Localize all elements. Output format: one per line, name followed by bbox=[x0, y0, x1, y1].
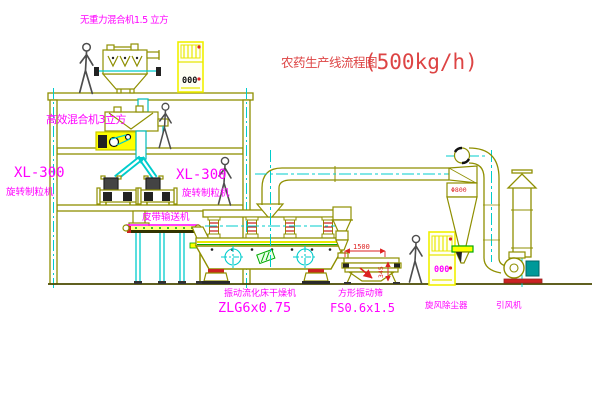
worker-figure-4 bbox=[410, 235, 423, 283]
label-conveyor: 皮带输送机 bbox=[142, 211, 190, 223]
indicator-dot bbox=[449, 237, 452, 240]
induced-draft-fan bbox=[504, 252, 542, 283]
label-granulator-mid: 旋转制粒机 bbox=[182, 187, 230, 199]
square-vibrating-sieve bbox=[338, 253, 401, 284]
label-granulator-left: 旋转制粒机 bbox=[6, 186, 54, 198]
cabinet2-display: 000 bbox=[434, 265, 449, 275]
indicator-dot bbox=[449, 266, 452, 269]
dim-sieve-height: 345 bbox=[377, 266, 385, 278]
granulator-left bbox=[97, 176, 139, 205]
exhaust-duct bbox=[262, 166, 449, 205]
control-cabinet-2: 000 bbox=[429, 232, 455, 285]
gravity-free-mixer bbox=[94, 44, 161, 93]
cyclone-dust-collector bbox=[447, 148, 477, 263]
process-flow-diagram: 000 bbox=[0, 0, 600, 403]
label-dryer-name: 振动流化床干燥机 bbox=[224, 287, 296, 299]
label-dryer-model: ZLG6x0.75 bbox=[218, 300, 291, 316]
belt-conveyor bbox=[123, 225, 201, 284]
cabinet1-display: 000 bbox=[182, 76, 197, 86]
label-xl300-mid: XL-300 bbox=[176, 167, 227, 183]
page-title-capacity: (500kg/h) bbox=[364, 50, 478, 74]
label-top-mixer: 无重力混合机1.5 立方 bbox=[80, 14, 168, 26]
label-fan: 引风机 bbox=[496, 300, 522, 311]
label-mixer2: 高效混合机3立方 bbox=[46, 112, 126, 126]
label-xl300-left: XL-300 bbox=[14, 165, 65, 181]
exhaust-stack bbox=[508, 170, 536, 257]
indicator-dot bbox=[197, 45, 200, 48]
cad-drawing-canvas: 000 bbox=[0, 0, 600, 403]
dryer-feet bbox=[202, 269, 330, 284]
label-sieve-model: FS0.6x1.5 bbox=[330, 301, 395, 315]
indicator-dot bbox=[197, 77, 200, 80]
dim-cyclone-diameter: Φ800 bbox=[451, 186, 467, 194]
y-chute bbox=[116, 157, 155, 178]
label-cyclone: 旋风除尘器 bbox=[425, 300, 468, 311]
granulator-right bbox=[138, 176, 177, 205]
page-title: 农药生产线流程图 bbox=[281, 55, 377, 70]
worker-figure-1 bbox=[80, 43, 93, 93]
label-sieve-name: 方形振动筛 bbox=[338, 287, 383, 299]
dim-sieve-length: 1500 bbox=[353, 243, 370, 251]
control-cabinet-1: 000 bbox=[178, 42, 203, 92]
